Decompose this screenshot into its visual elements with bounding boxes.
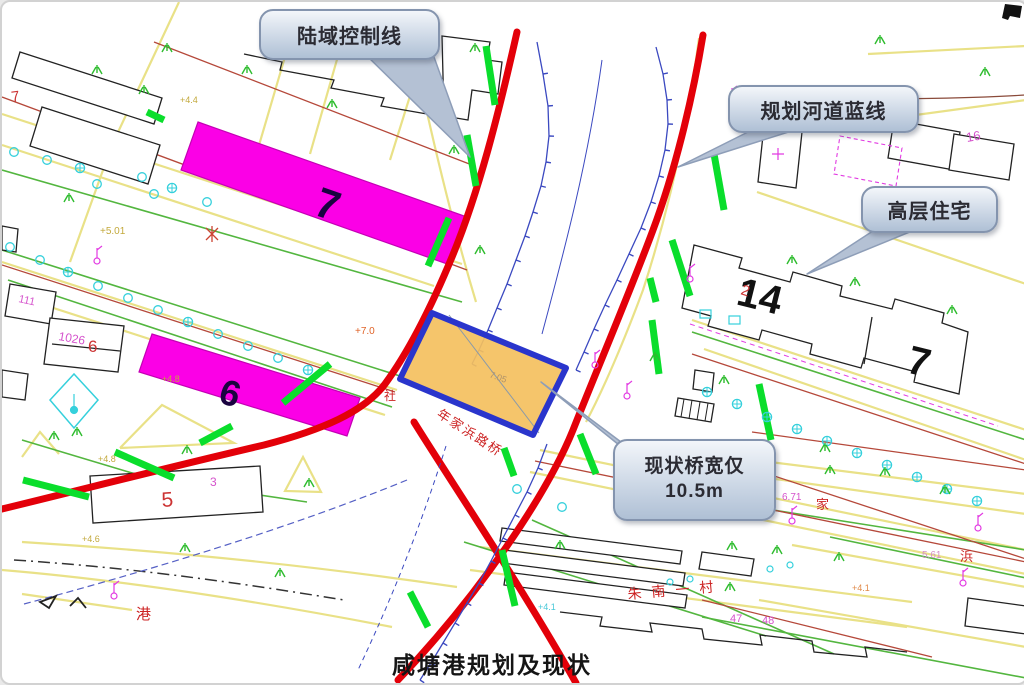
callout-river-blue-label: 规划河道蓝线 bbox=[761, 95, 887, 124]
label-elev41a: +4.1 bbox=[852, 583, 870, 593]
map-title-caption: 咸塘港规划及现状 bbox=[332, 646, 652, 680]
label-num48: 48 bbox=[762, 615, 774, 627]
label-jia: 家 bbox=[816, 497, 829, 512]
callout-river-blue-line: 规划河道蓝线 bbox=[728, 85, 919, 133]
building-5 bbox=[90, 466, 263, 523]
label-elev561: 5.61 bbox=[922, 550, 942, 561]
bridge-highlight: 7.05 bbox=[400, 313, 566, 435]
label-elev70: +7.0 bbox=[355, 326, 375, 337]
label-red6: 6 bbox=[88, 337, 97, 356]
callout-bridge-width-line2: 10.5m bbox=[665, 480, 724, 505]
label-elev48b: +4.8 bbox=[162, 374, 180, 384]
planning-map-slide: 7.05 7 6 14 7 5 16 bbox=[0, 0, 1024, 685]
label-elev41b: +4.1 bbox=[538, 602, 556, 612]
callout-highrise: 高层住宅 bbox=[861, 186, 998, 233]
label-num3: 3 bbox=[210, 475, 217, 489]
label-red7: 7 bbox=[10, 88, 21, 106]
hatched-structure bbox=[675, 398, 714, 422]
building-16b bbox=[949, 134, 1014, 180]
label-bang: 浜 bbox=[960, 549, 973, 564]
callout-highrise-label: 高层住宅 bbox=[888, 195, 972, 224]
label-she: 社 bbox=[384, 388, 396, 403]
label-elev46: +4.6 bbox=[82, 534, 100, 544]
label-elev48a: +4.8 bbox=[98, 454, 116, 464]
river-centerline bbox=[542, 60, 602, 334]
tail-highrise bbox=[807, 227, 917, 274]
land-control-line-segments bbox=[23, 46, 771, 627]
callout-land-control-line: 陆域控制线 bbox=[259, 9, 440, 60]
label-building5: 5 bbox=[161, 488, 174, 512]
callout-land-control-label: 陆域控制线 bbox=[297, 20, 402, 49]
label-elev44: +4.4 bbox=[180, 95, 198, 105]
label-elev671: 6.71 bbox=[782, 492, 802, 503]
label-gang: 港 bbox=[136, 606, 151, 623]
label-num47: 47 bbox=[730, 613, 742, 625]
label-building16: 16 bbox=[965, 128, 982, 145]
corner-glyph bbox=[1002, 4, 1022, 20]
callout-bridge-width: 现状桥宽仅 10.5m bbox=[613, 439, 776, 521]
label-elev501: +5.01 bbox=[100, 226, 126, 237]
callout-bridge-width-line1: 现状桥宽仅 bbox=[644, 455, 744, 480]
